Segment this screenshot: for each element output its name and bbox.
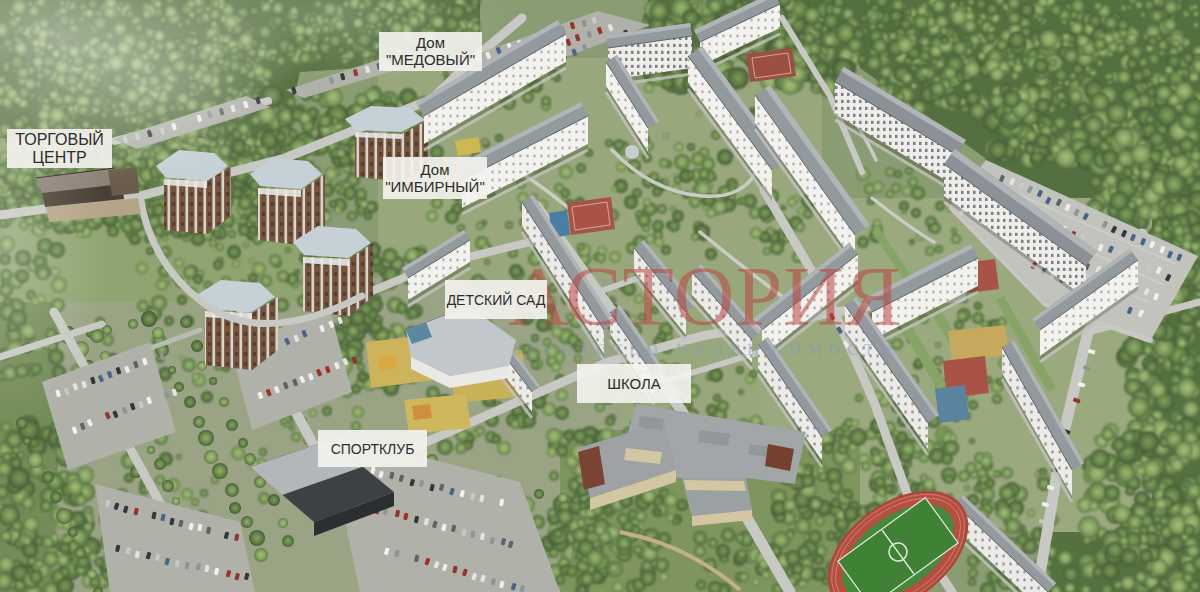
- svg-text:"МЕДОВЫЙ": "МЕДОВЫЙ": [386, 51, 475, 68]
- svg-text:Дом: Дом: [421, 161, 450, 178]
- svg-text:"ИМБИРНЫЙ": "ИМБИРНЫЙ": [385, 178, 484, 195]
- svg-text:ТОРГОВЫЙ: ТОРГОВЫЙ: [15, 130, 104, 148]
- svg-text:АСТОРИЯ: АСТОРИЯ: [508, 250, 902, 343]
- svg-text:ШКОЛА: ШКОЛА: [607, 375, 661, 392]
- svg-text:ЦЕНТР: ЦЕНТР: [32, 149, 87, 166]
- svg-text:СПОРТКЛУБ: СПОРТКЛУБ: [331, 441, 415, 457]
- svg-text:ДЕТСКИЙ САД: ДЕТСКИЙ САД: [447, 291, 546, 308]
- svg-text:агентство недвижимости: агентство недвижимости: [511, 334, 899, 360]
- svg-text:Дом: Дом: [416, 34, 445, 51]
